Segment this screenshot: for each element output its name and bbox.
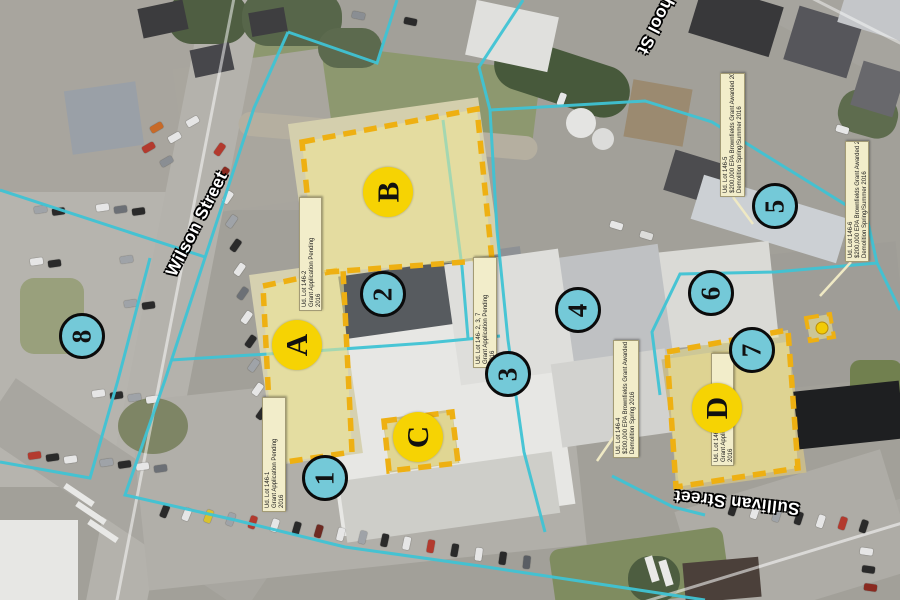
pallet-yard — [623, 79, 692, 147]
building-black-east — [793, 381, 900, 450]
tank-large — [566, 108, 596, 138]
tank-small — [592, 128, 614, 150]
marker-circle-D: D — [692, 383, 742, 433]
tree-row-3 — [318, 28, 382, 68]
marker-number: 3 — [493, 367, 524, 381]
car-22 — [233, 262, 246, 276]
marker-number: 8 — [67, 329, 98, 343]
marker-circle-3: 3 — [485, 351, 531, 397]
parcel-label-text: Ud. Lot 146- 2, 3, 7 — [476, 261, 483, 364]
marker-circle-A: A — [272, 320, 322, 370]
car-23 — [236, 286, 249, 300]
parcel-label-text: Ud. Lot 146-2 — [302, 201, 309, 307]
parcel-label-text: $200,000 EPA Brownfields Grant Awarded 2… — [730, 77, 737, 193]
marker-number: 1 — [310, 471, 341, 485]
marker-circle-B: B — [363, 167, 413, 217]
car-21 — [229, 238, 242, 252]
parcel-label-text: $200,000 EPA Brownfields Grant Awarded 2… — [623, 344, 630, 454]
parcel-label-text: 2016 — [316, 201, 322, 307]
parcel-label-5: Ud. Lot 146-6$200,000 EPA Brownfields Gr… — [845, 141, 869, 262]
parcel-label-text: Demolition Spring/Summer 2016 — [737, 77, 744, 193]
marker-number: 7 — [737, 343, 768, 357]
car-24 — [240, 310, 253, 324]
marker-circle-2: 2 — [360, 271, 406, 317]
parcel-label-text: Ud. Lot 146-5 — [723, 77, 730, 193]
car-15 — [498, 551, 506, 565]
marker-circle-4: 4 — [555, 287, 601, 333]
parcel-label-3: Ud. Lot 146-4$200,000 EPA Brownfields Gr… — [613, 340, 639, 458]
parcel-label-text: Demolition Spring 2016 — [630, 344, 637, 454]
parcel-label-4: Ud. Lot 146-5$200,000 EPA Brownfields Gr… — [720, 73, 745, 197]
parcel-label-text: Ud. Lot 146-1 — [265, 401, 272, 508]
car-20 — [225, 214, 238, 228]
marker-circle-8: 8 — [59, 313, 105, 359]
parcel-label-text: Demolition Spring/Summer 2016 — [862, 145, 869, 258]
parcel-label-text: $200,000 EPA Brownfields Grant Awarded 2… — [855, 145, 862, 258]
car-26 — [247, 358, 260, 372]
marker-letter: C — [400, 426, 436, 448]
car-25 — [244, 334, 257, 348]
marker-number: 5 — [760, 199, 791, 213]
car-14 — [474, 547, 482, 561]
car-16 — [523, 555, 531, 569]
parcel-label-text: Ud. Lot 146-4 — [616, 344, 623, 454]
car-64 — [864, 583, 878, 591]
marker-circle-1: 1 — [302, 455, 348, 501]
parcel-label-text: 2016 — [279, 401, 286, 508]
car-69 — [639, 230, 653, 240]
marker-circle-C: C — [393, 412, 443, 462]
marker-letter: B — [370, 182, 406, 203]
aerial-map: Ud. Lot 146-2Grant Application Pending20… — [0, 0, 900, 600]
parcel-label-text: Grant Application Pending — [483, 261, 490, 364]
building-ne-1 — [688, 0, 784, 57]
parcel-label-text: Ud. Lot 146-6 — [848, 145, 855, 258]
building-white-north — [465, 0, 559, 72]
car-65 — [351, 11, 365, 20]
parcel-label-2: Ud. Lot 146-1Grant Application Pending20… — [262, 397, 286, 512]
parcel-label-1: Ud. Lot 146- 2, 3, 7Grant Application Pe… — [473, 257, 497, 368]
parcel-label-text: 2016 — [490, 261, 497, 364]
marker-letter: D — [699, 397, 735, 419]
parcel-label-text: Grant Application Pending — [272, 401, 279, 508]
car-66 — [403, 17, 417, 26]
building-white-southwest — [0, 520, 78, 600]
marker-circle-7: 7 — [729, 327, 775, 373]
marker-circle-6: 6 — [688, 270, 734, 316]
marker-letter: A — [279, 334, 315, 356]
building-barn — [64, 81, 144, 154]
marker-number: 2 — [368, 287, 399, 301]
parcel-label-text: Grant Application Pending — [309, 201, 316, 307]
street-label-1: School St — [632, 0, 687, 57]
marker-circle-5: 5 — [752, 183, 798, 229]
marker-number: 4 — [563, 303, 594, 317]
marker-number: 6 — [696, 286, 727, 300]
car-68 — [609, 220, 623, 230]
parcel-label-0: Ud. Lot 146-2Grant Application Pending20… — [299, 197, 322, 311]
